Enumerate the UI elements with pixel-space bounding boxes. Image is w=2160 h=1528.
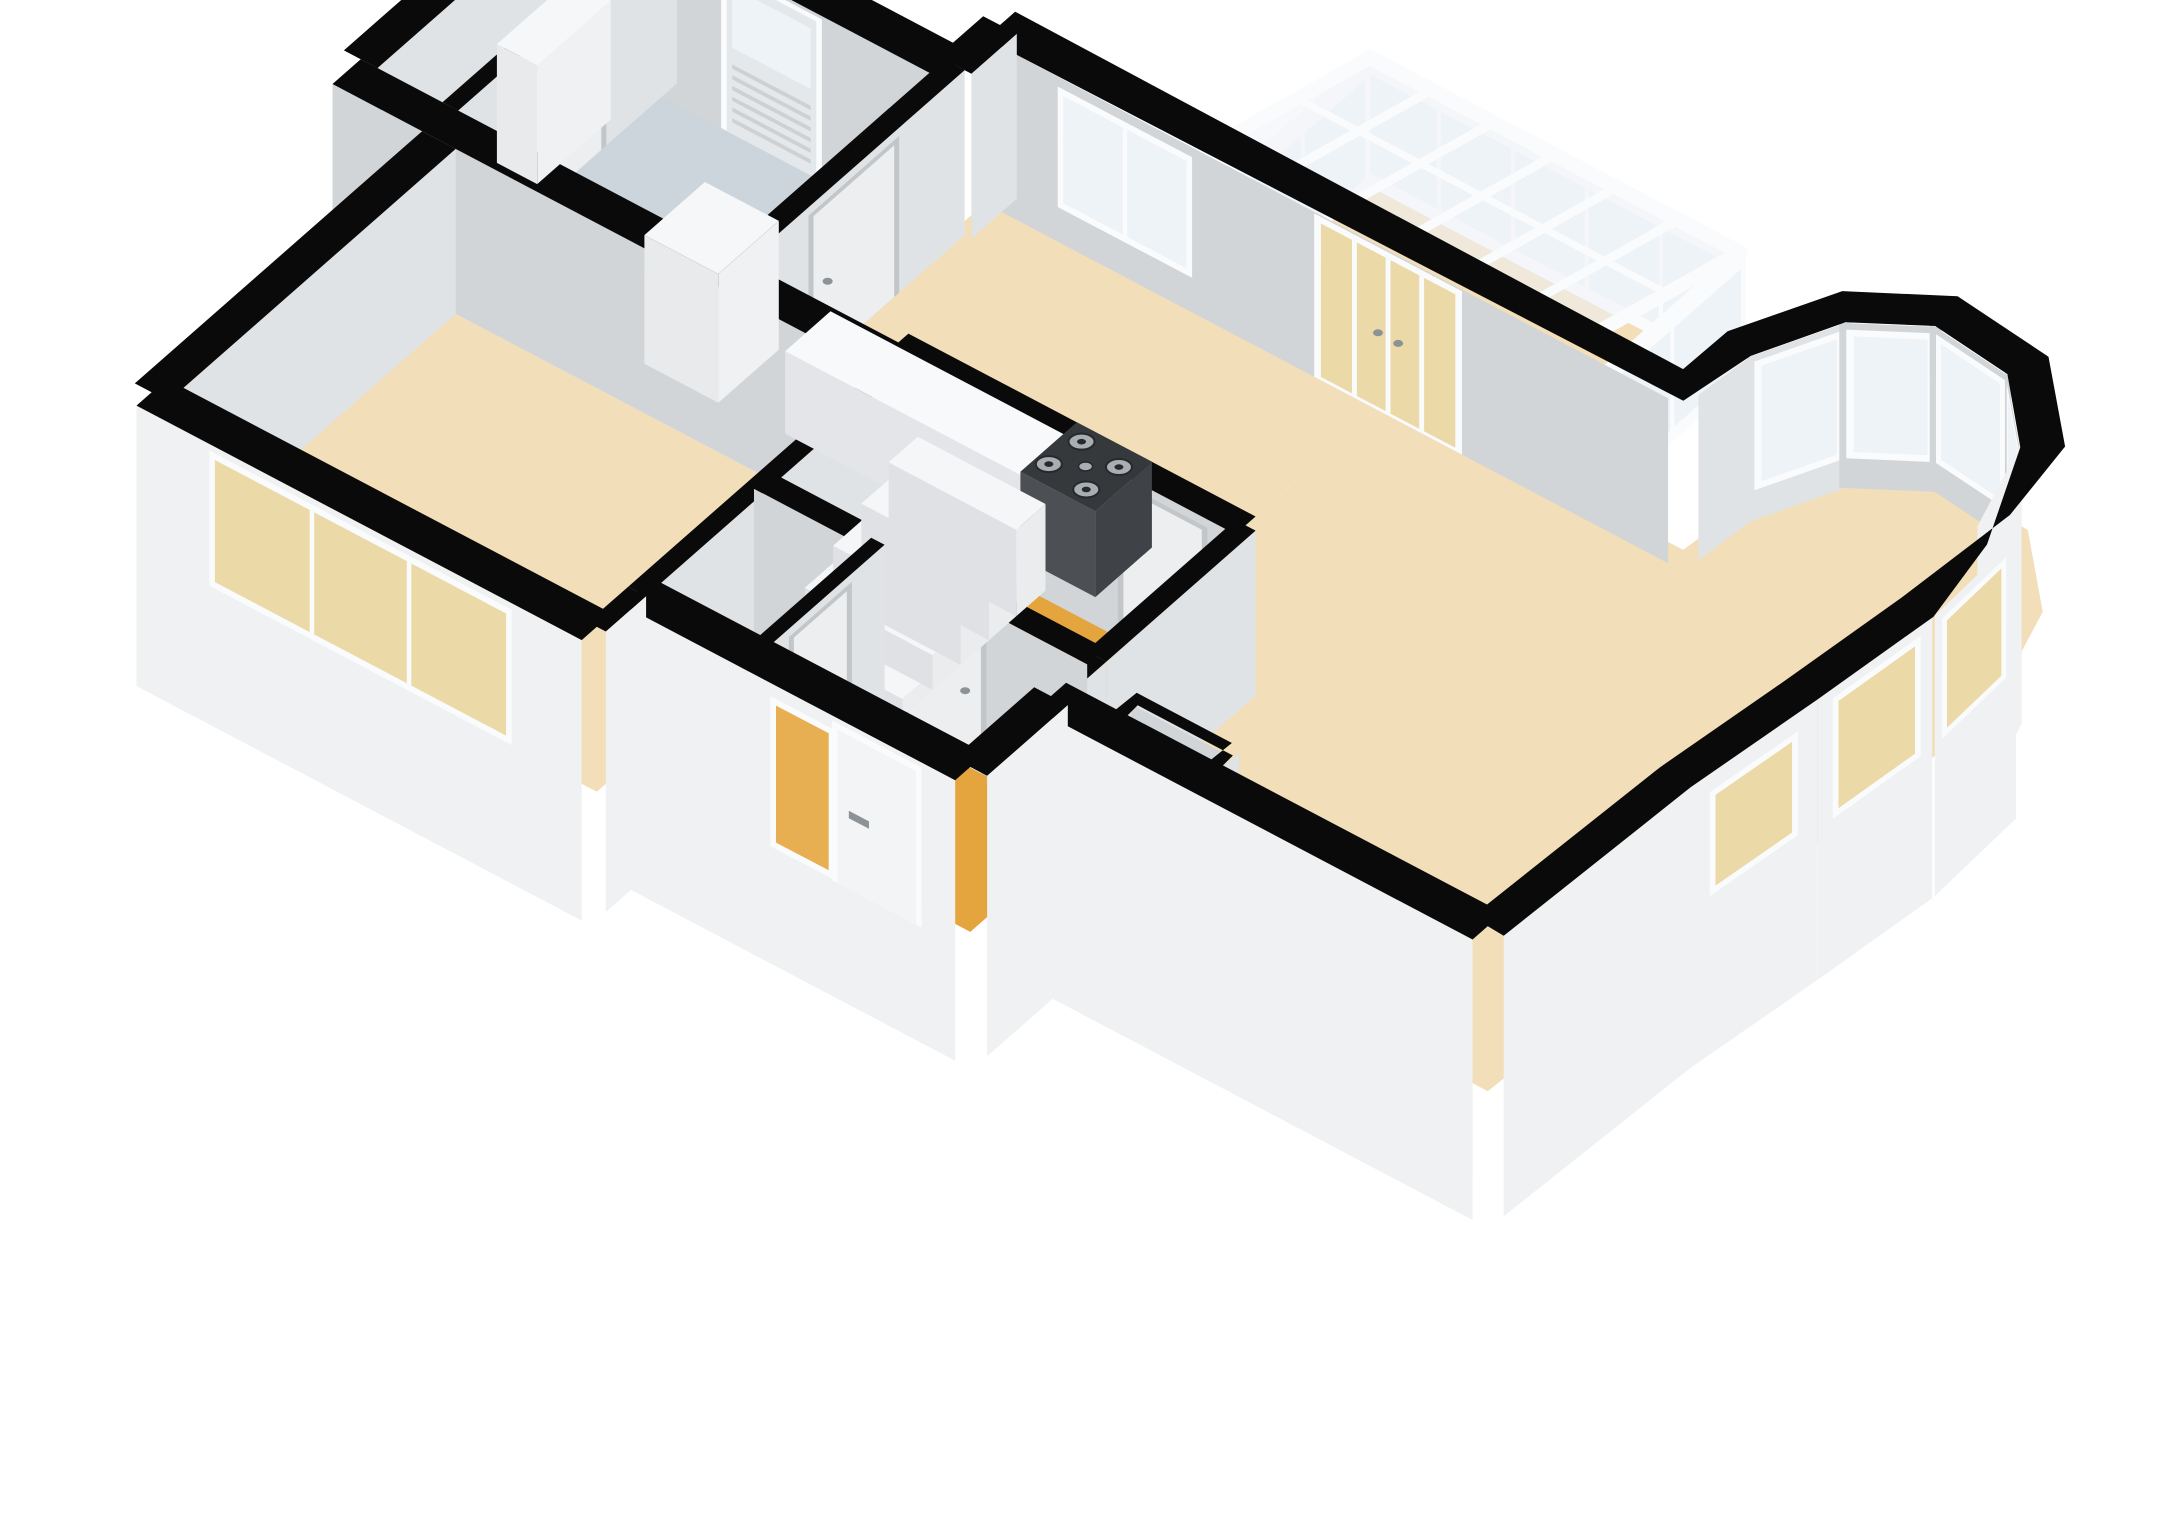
floorplan-stage — [0, 0, 2160, 1528]
floorplan-3d-canvas — [0, 0, 2160, 1528]
